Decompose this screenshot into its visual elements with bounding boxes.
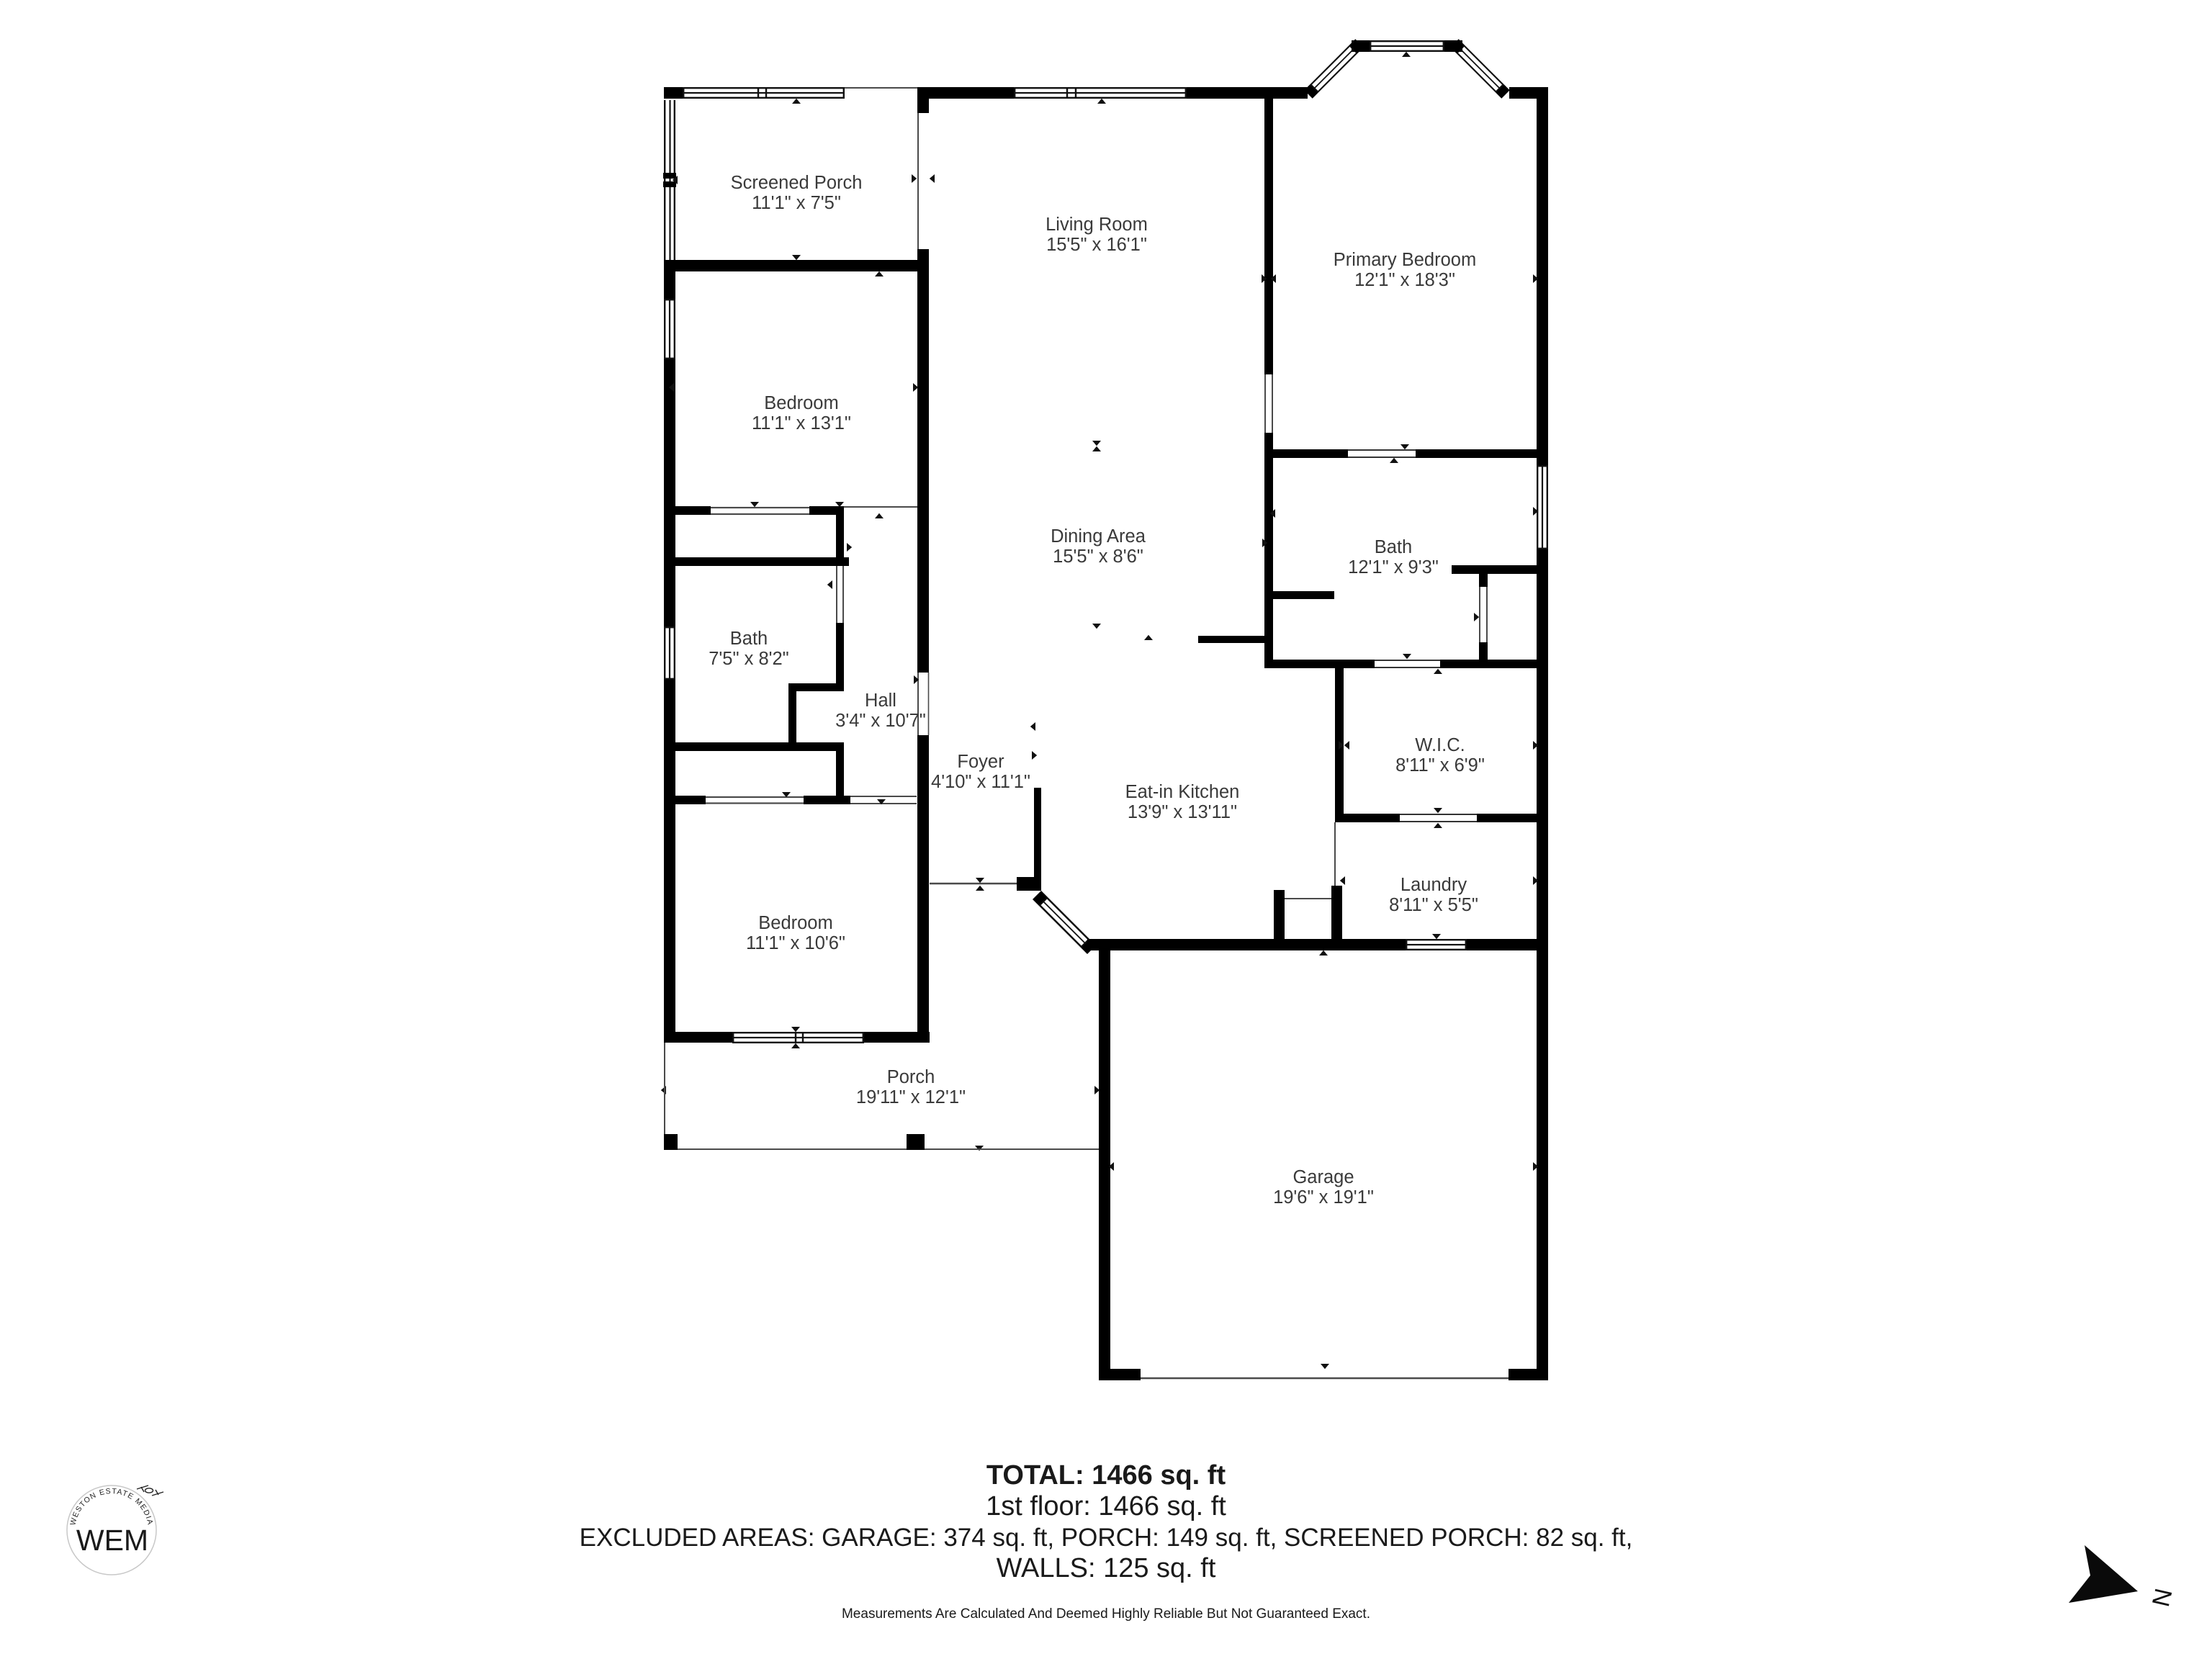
svg-text:Bedroom: Bedroom [764, 393, 838, 413]
svg-text:Bath: Bath [1375, 537, 1412, 557]
svg-text:Hall: Hall [865, 691, 896, 711]
svg-text:12'1" x 18'3": 12'1" x 18'3" [1354, 270, 1455, 290]
svg-text:Dining Area: Dining Area [1051, 526, 1146, 547]
svg-text:3'4" x 10'7": 3'4" x 10'7" [835, 711, 926, 731]
svg-text:Foyer: Foyer [957, 752, 1004, 772]
svg-text:13'9" x 13'11": 13'9" x 13'11" [1128, 802, 1237, 822]
svg-text:Laundry: Laundry [1401, 875, 1467, 895]
svg-text:WEM: WEM [76, 1524, 148, 1557]
svg-text:1st floor: 1466 sq. ft: 1st floor: 1466 sq. ft [986, 1491, 1226, 1521]
svg-text:8'11" x 6'9": 8'11" x 6'9" [1395, 755, 1485, 775]
svg-text:EXCLUDED AREAS: GARAGE: 374 sq: EXCLUDED AREAS: GARAGE: 374 sq. ft, PORC… [580, 1524, 1633, 1552]
svg-text:Eat-in Kitchen: Eat-in Kitchen [1125, 782, 1240, 802]
svg-text:Garage: Garage [1292, 1167, 1354, 1187]
svg-text:7'5" x 8'2": 7'5" x 8'2" [709, 649, 789, 669]
svg-text:19'11" x 12'1": 19'11" x 12'1" [856, 1087, 966, 1107]
svg-text:WALLS: 125 sq. ft: WALLS: 125 sq. ft [997, 1553, 1216, 1583]
svg-text:19'6" x 19'1": 19'6" x 19'1" [1273, 1187, 1374, 1208]
svg-text:4'10" x 11'1": 4'10" x 11'1" [931, 772, 1030, 792]
svg-text:Bath: Bath [730, 629, 768, 649]
svg-text:W.I.C.: W.I.C. [1415, 735, 1465, 755]
svg-text:TOTAL: 1466 sq. ft: TOTAL: 1466 sq. ft [986, 1460, 1226, 1491]
svg-text:11'1" x 7'5": 11'1" x 7'5" [752, 193, 841, 213]
svg-text:11'1" x 13'1": 11'1" x 13'1" [752, 413, 851, 433]
svg-text:Porch: Porch [887, 1067, 935, 1087]
svg-text:12'1" x 9'3": 12'1" x 9'3" [1348, 557, 1439, 577]
svg-text:Primary Bedroom: Primary Bedroom [1334, 250, 1476, 270]
svg-text:Bedroom: Bedroom [758, 913, 832, 933]
svg-text:8'11" x 5'5": 8'11" x 5'5" [1389, 895, 1478, 915]
svg-text:Measurements Are Calculated An: Measurements Are Calculated And Deemed H… [842, 1606, 1370, 1622]
svg-text:11'1" x 10'6": 11'1" x 10'6" [746, 933, 845, 953]
svg-text:15'5" x 8'6": 15'5" x 8'6" [1053, 547, 1143, 567]
svg-text:Screened Porch: Screened Porch [731, 173, 863, 193]
svg-text:Living Room: Living Room [1046, 215, 1148, 235]
svg-text:15'5" x 16'1": 15'5" x 16'1" [1046, 235, 1147, 255]
